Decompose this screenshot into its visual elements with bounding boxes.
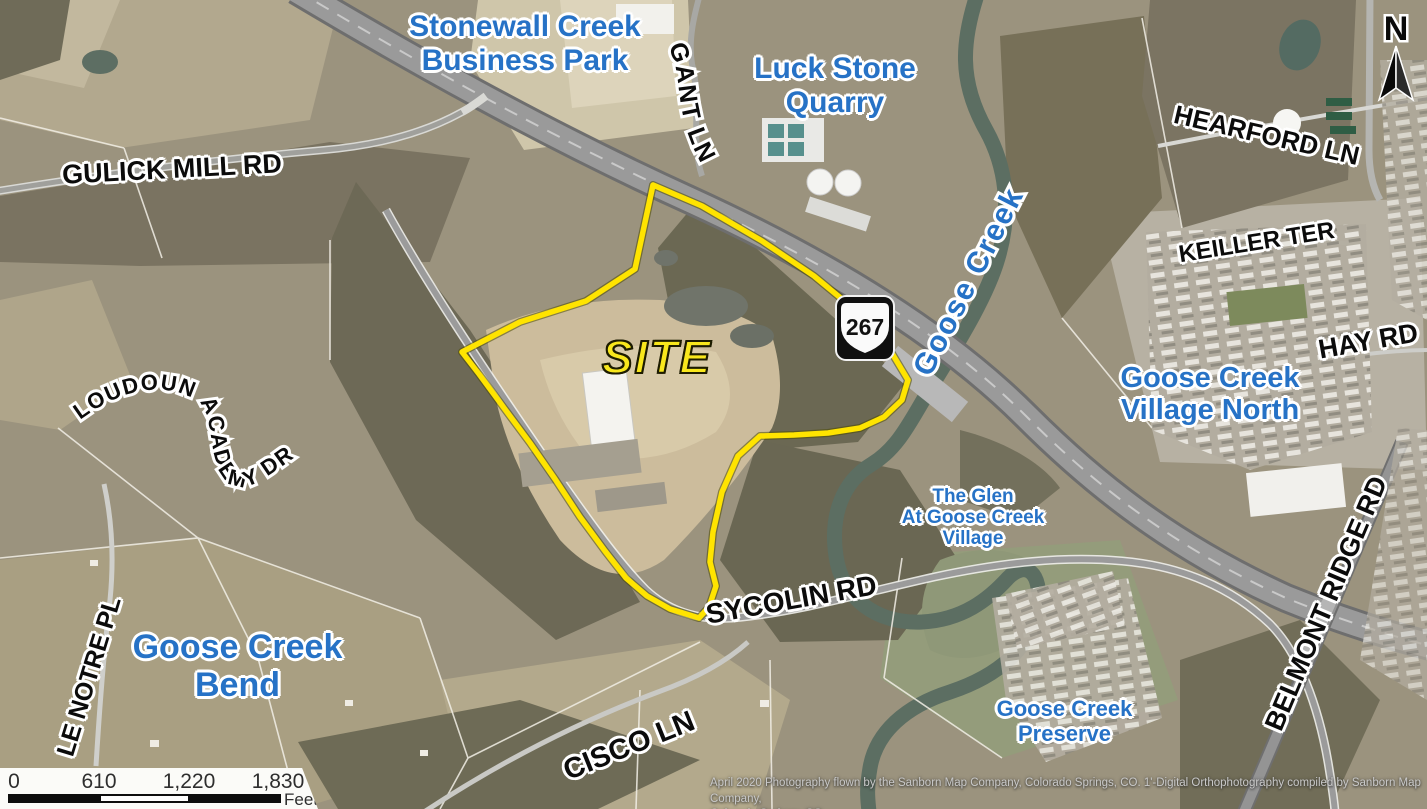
- map-artwork: GANT LN Goose Creek LOUDOUN ACADEMY DR 2…: [0, 0, 1427, 809]
- aerial-site-map: GANT LN Goose Creek LOUDOUN ACADEMY DR 2…: [0, 0, 1427, 809]
- route-267-shield: 267: [836, 296, 894, 360]
- scale-bar: 0 610 1,220 1,830 Feet: [0, 768, 318, 809]
- svg-text:267: 267: [846, 314, 884, 340]
- scale-tick: 610: [81, 770, 116, 794]
- credits-line: April 2020 Photography flown by the Sanb…: [710, 776, 1425, 807]
- scale-bar-segments: [8, 794, 281, 803]
- photography-credits: April 2020 Photography flown by the Sanb…: [710, 776, 1425, 809]
- scale-tick: 1,220: [163, 770, 216, 794]
- scale-bar-segment: [99, 794, 190, 803]
- scale-tick: 0: [8, 770, 20, 794]
- scale-bar-segment: [8, 794, 99, 803]
- north-label: N: [1384, 10, 1409, 48]
- scale-bar-segment: [190, 794, 281, 803]
